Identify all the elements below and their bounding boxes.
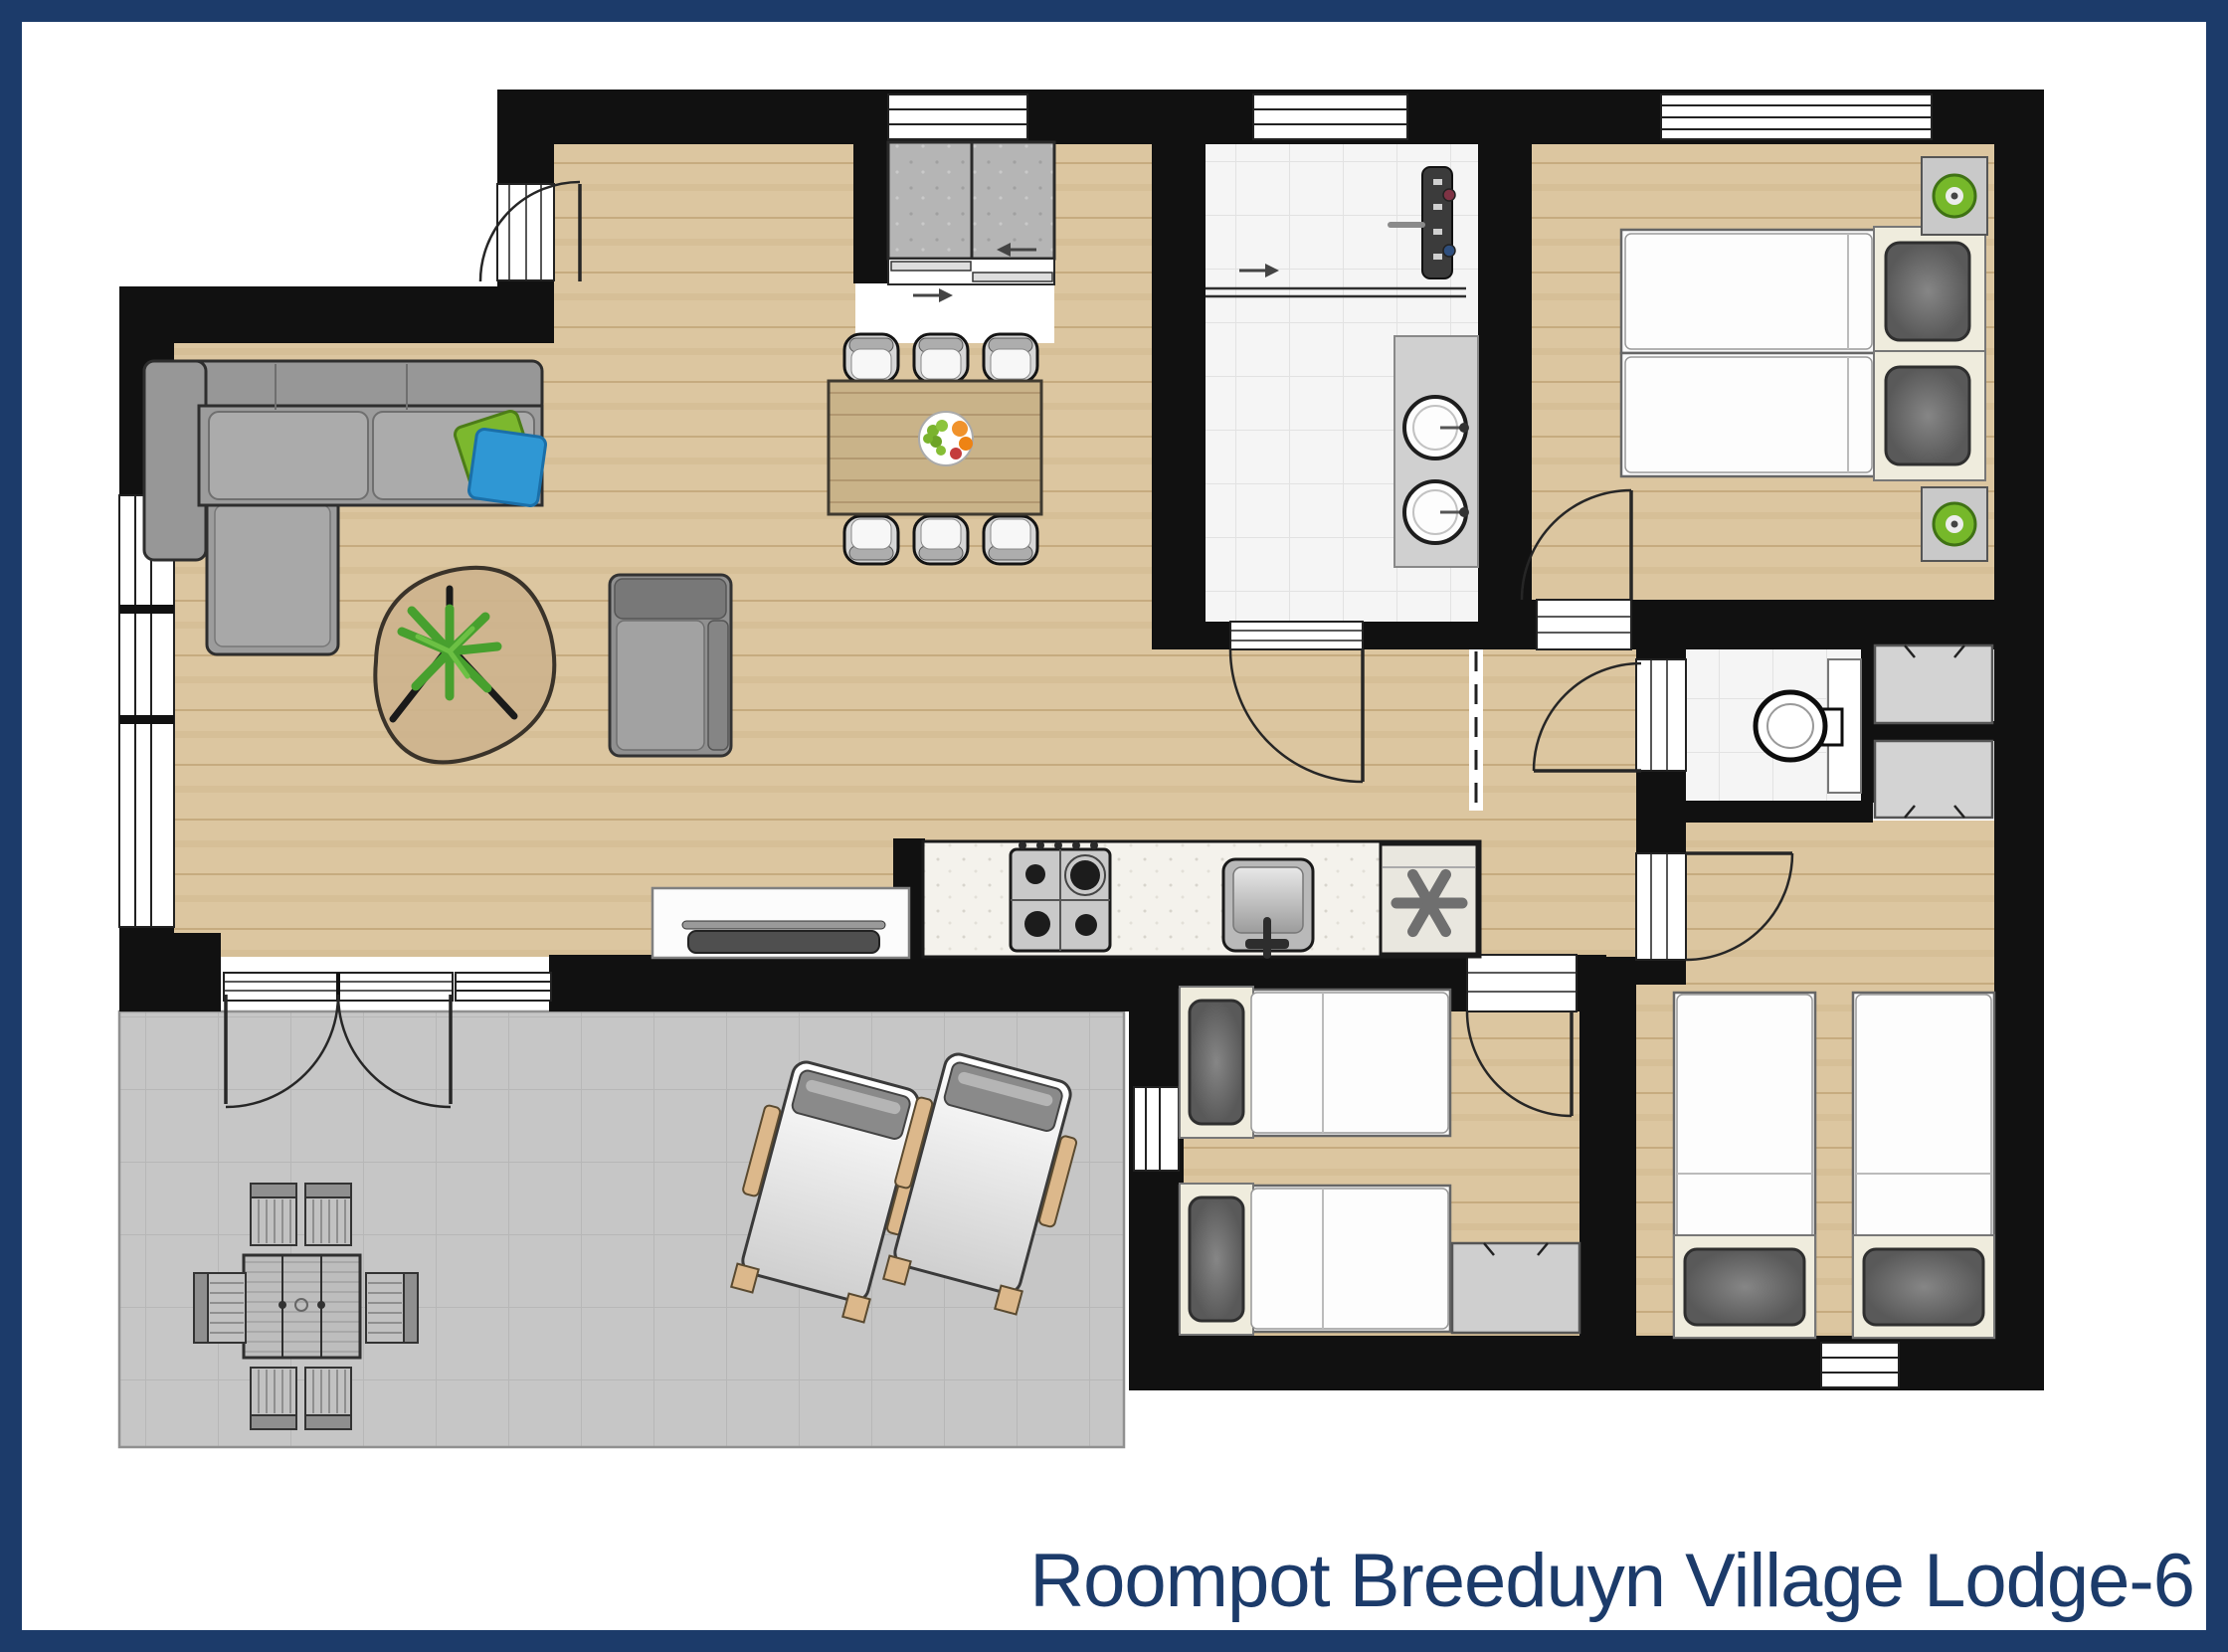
slide-arrow-right-icon [913, 288, 953, 302]
passage-threshold-dashed [1469, 649, 1483, 811]
outdoor-chair [194, 1273, 246, 1343]
tv [688, 931, 879, 953]
bedroom-2-wardrobe [1452, 1243, 1579, 1333]
nightstand [1922, 487, 1987, 561]
single-bed [1674, 993, 1815, 1338]
hob [1011, 841, 1110, 951]
window-living-south [456, 973, 551, 1001]
kitchen-sink [1223, 859, 1313, 955]
outdoor-chair [251, 1368, 296, 1429]
tv-sideboard [652, 888, 909, 958]
blue-pillow [467, 428, 546, 506]
plan-title: Roompot Breeduyn Village Lodge-6 [1029, 1538, 2194, 1624]
floor-plan-image [0, 0, 2228, 1652]
single-bed [1853, 993, 1994, 1338]
outdoor-dining-table [244, 1255, 360, 1358]
entry-hall-floor [552, 144, 855, 343]
toilet-bowl [1756, 692, 1825, 760]
outdoor-chair [305, 1184, 351, 1245]
sliding-wardrobe [888, 142, 1054, 302]
hall-floor [1054, 144, 1154, 343]
double-bed [1621, 227, 1985, 480]
fridge [1381, 844, 1477, 954]
window-bedroom-2-terrace [1134, 1087, 1179, 1171]
window-bedroom-1 [1661, 94, 1932, 139]
dining-set [829, 334, 1041, 564]
outdoor-chair [366, 1273, 418, 1343]
window-bathroom [1253, 94, 1407, 139]
window-top-1 [888, 94, 1027, 139]
floor-plan [0, 0, 2228, 1652]
single-bed [1180, 1184, 1450, 1335]
window-bedroom-3 [1821, 1343, 1899, 1387]
nightstand [1922, 157, 1987, 235]
outdoor-chair [251, 1184, 296, 1245]
single-bed [1180, 987, 1450, 1138]
kitchen [923, 841, 1480, 957]
outdoor-chair [305, 1368, 351, 1429]
double-washbasin [1394, 336, 1478, 567]
armchair [610, 575, 731, 756]
fruit-bowl [919, 412, 973, 465]
